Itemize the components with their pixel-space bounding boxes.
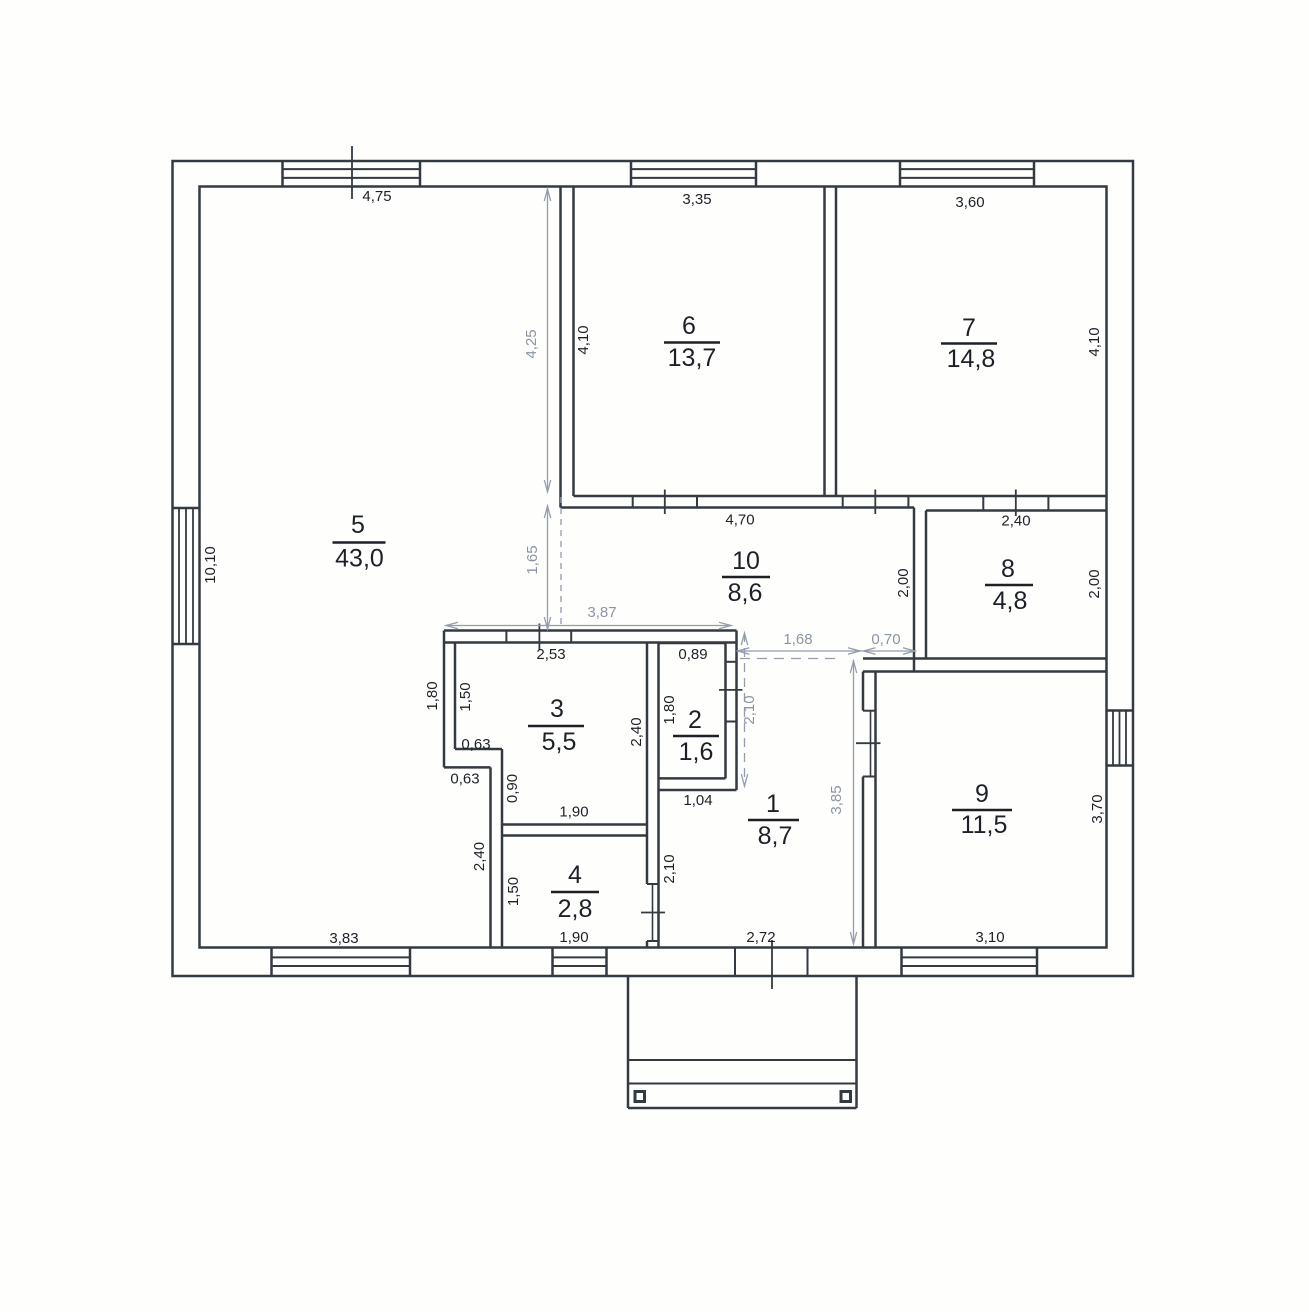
svg-text:3: 3 [550,695,564,723]
svg-text:9: 9 [975,780,989,808]
svg-text:2,10: 2,10 [661,854,678,883]
svg-text:2,72: 2,72 [746,929,775,946]
svg-text:1: 1 [766,790,780,818]
svg-text:1,65: 1,65 [524,545,541,574]
svg-text:43,0: 43,0 [335,545,384,573]
svg-text:3,35: 3,35 [682,191,711,208]
svg-text:4,25: 4,25 [523,329,540,358]
svg-text:8,6: 8,6 [728,579,763,607]
svg-text:13,7: 13,7 [668,344,717,372]
svg-text:3,60: 3,60 [955,194,984,211]
svg-text:3,87: 3,87 [587,604,616,621]
svg-text:1,04: 1,04 [683,792,712,809]
svg-text:1,80: 1,80 [661,695,678,724]
svg-text:4,10: 4,10 [575,325,592,354]
svg-text:0,63: 0,63 [461,736,490,753]
svg-text:0,89: 0,89 [678,646,707,663]
svg-text:2,40: 2,40 [471,842,488,871]
svg-text:1,50: 1,50 [505,877,522,906]
svg-text:1,90: 1,90 [559,804,588,821]
svg-text:4: 4 [568,861,582,889]
svg-text:4,8: 4,8 [993,587,1028,615]
svg-text:14,8: 14,8 [947,345,996,373]
svg-text:8,7: 8,7 [758,822,793,850]
svg-text:5,5: 5,5 [542,728,577,756]
svg-text:4,75: 4,75 [362,188,391,205]
svg-text:1,50: 1,50 [457,682,474,711]
svg-text:2,00: 2,00 [1086,569,1103,598]
svg-text:0,63: 0,63 [450,771,479,788]
svg-text:2,00: 2,00 [895,568,912,597]
svg-text:2: 2 [688,706,702,734]
svg-text:1,80: 1,80 [424,681,441,710]
svg-text:3,70: 3,70 [1089,794,1106,823]
svg-text:2,40: 2,40 [628,717,645,746]
svg-text:1,6: 1,6 [679,738,714,766]
svg-text:2,10: 2,10 [741,695,758,724]
svg-text:0,90: 0,90 [504,774,521,803]
svg-text:1,68: 1,68 [783,631,812,648]
svg-text:4,70: 4,70 [725,512,754,529]
svg-text:4,10: 4,10 [1086,327,1103,356]
svg-text:0,70: 0,70 [871,631,900,648]
svg-text:2,8: 2,8 [558,895,593,923]
svg-text:2,40: 2,40 [1001,513,1030,530]
svg-text:6: 6 [682,312,696,340]
svg-text:10,10: 10,10 [202,546,219,584]
svg-text:3,83: 3,83 [329,930,358,947]
svg-text:7: 7 [962,314,976,342]
svg-text:11,5: 11,5 [961,811,1008,839]
svg-text:8: 8 [1001,555,1015,583]
svg-text:10: 10 [732,547,760,575]
svg-text:1,90: 1,90 [559,929,588,946]
svg-text:3,10: 3,10 [975,929,1004,946]
svg-text:3,85: 3,85 [828,785,845,814]
svg-text:2,53: 2,53 [536,646,565,663]
svg-text:5: 5 [351,511,365,539]
